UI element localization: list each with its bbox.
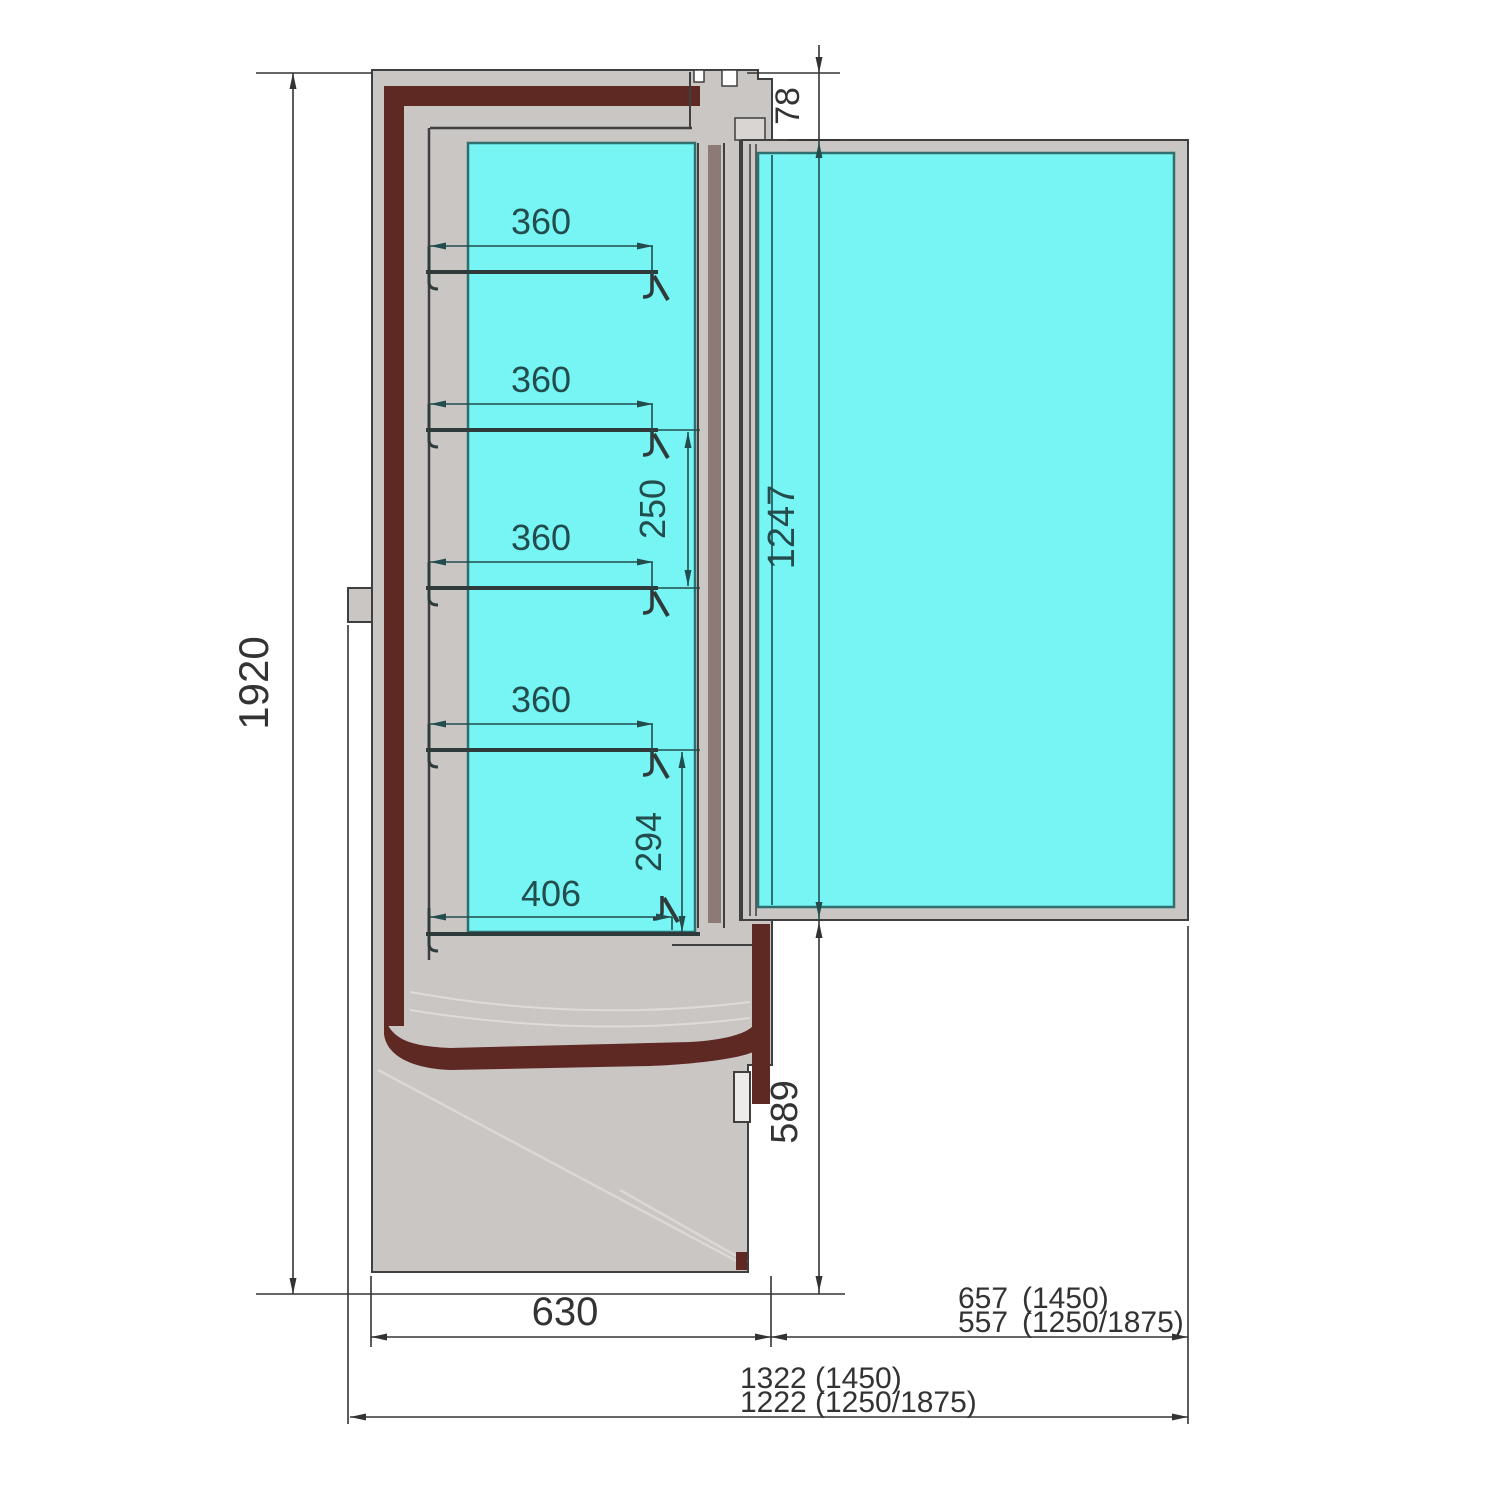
technical-drawing-canvas: 360 360 360 <box>0 0 1500 1500</box>
shelf-line <box>426 586 658 590</box>
arrow-up <box>290 73 297 89</box>
arrow-up <box>816 922 823 938</box>
base-corner-mark <box>736 1252 747 1270</box>
shelf-line <box>426 270 658 274</box>
cabinet-body <box>348 70 772 1272</box>
dim-door-swing-other: 557 (1250/1875) <box>958 1306 1184 1339</box>
value: 557 <box>958 1306 1008 1339</box>
cabinet-cross-section-drawing: 360 360 360 <box>0 0 1500 1500</box>
dim-shelf-depth-4: 360 <box>511 679 571 720</box>
door-open <box>742 140 1188 920</box>
floor-line <box>426 932 700 936</box>
rear-protrusion <box>348 588 372 622</box>
dim-shelf-depth-1: 360 <box>511 201 571 242</box>
cabinet-depth-dim: 630 <box>371 1276 771 1347</box>
arrow-down <box>816 1276 823 1292</box>
service-box <box>734 1072 750 1122</box>
front-frame-mullion <box>708 145 721 923</box>
arrow-left <box>771 1334 787 1341</box>
dim-bottom-shelf-depth: 406 <box>521 873 581 914</box>
shelf-line <box>426 748 658 752</box>
arrow-left <box>371 1334 387 1341</box>
bracket-step <box>735 118 765 140</box>
dim-lower-front-height: 589 <box>764 1080 806 1143</box>
note: (1250/1875) <box>1022 1306 1184 1339</box>
liner-top-band <box>384 86 700 106</box>
arrow-down <box>290 1278 297 1294</box>
dim-door-height: 1247 <box>761 485 803 570</box>
door-glass <box>758 153 1174 907</box>
bracket-notch-2 <box>722 70 737 86</box>
note: (1250/1875) <box>815 1386 977 1419</box>
dim-shelf-depth-3: 360 <box>511 517 571 558</box>
dim-cabinet-depth: 630 <box>532 1290 599 1334</box>
front-liner-band <box>752 924 770 1104</box>
arrow-left <box>350 1414 366 1421</box>
dim-overall-height: 1920 <box>230 636 277 729</box>
value: 1222 <box>740 1386 807 1419</box>
bracket-notch-1 <box>694 70 704 82</box>
shelf-line <box>426 428 658 432</box>
dim-shelf-pitch-mid: 250 <box>632 479 673 539</box>
dim-overall-depth-other: 1222 (1250/1875) <box>740 1386 977 1419</box>
dim-shelf-depth-2: 360 <box>511 359 571 400</box>
dim-shelf-pitch-bottom: 294 <box>628 812 669 872</box>
door-swing-depth-dim: 657 (1450) 557 (1250/1875) <box>771 926 1188 1424</box>
arrow-right <box>1172 1414 1188 1421</box>
dim-top-clearance: 78 <box>769 87 807 125</box>
arrow-down-outside <box>816 57 823 73</box>
arrow-right <box>755 1334 771 1341</box>
liner-back-band <box>384 86 404 1026</box>
